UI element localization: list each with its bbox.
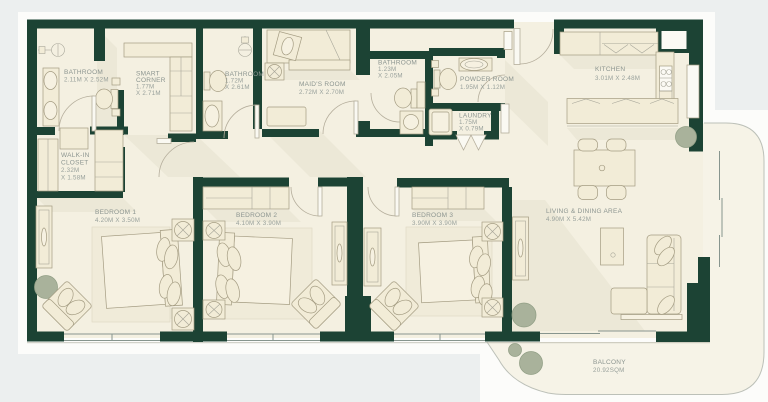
svg-text:2.72M X 2.70M: 2.72M X 2.70M [299,89,344,96]
svg-text:KITCHEN: KITCHEN [595,66,625,73]
svg-text:BEDROOM 3: BEDROOM 3 [412,212,453,219]
svg-text:POWDER ROOM: POWDER ROOM [460,76,514,83]
svg-text:LIVING & DINING AREA: LIVING & DINING AREA [546,208,623,215]
svg-text:BEDROOM 1: BEDROOM 1 [95,209,136,216]
svg-text:X 1.58M: X 1.58M [61,175,86,182]
svg-text:X 2.71M: X 2.71M [136,90,161,97]
svg-text:20.92SQM: 20.92SQM [593,367,625,374]
svg-text:MAID'S ROOM: MAID'S ROOM [299,81,346,88]
svg-text:1.95M X 1.12M: 1.95M X 1.12M [460,84,505,91]
svg-text:X 2.05M: X 2.05M [378,73,403,80]
svg-text:3.01M X 2.48M: 3.01M X 2.48M [595,75,640,82]
svg-text:BEDROOM 2: BEDROOM 2 [236,212,277,219]
svg-text:4.10M X 3.90M: 4.10M X 3.90M [236,220,281,227]
svg-text:BALCONY: BALCONY [593,359,626,366]
svg-text:X 0.79M: X 0.79M [459,126,484,133]
svg-text:4.90M X 5.42M: 4.90M X 5.42M [546,216,591,223]
svg-text:BATHROOM: BATHROOM [64,69,103,76]
svg-text:X 2.61M: X 2.61M [225,84,250,91]
svg-text:CLOSET: CLOSET [61,160,89,167]
svg-text:2.11M X 2.52M: 2.11M X 2.52M [64,77,109,84]
svg-text:4.20M X 3.50M: 4.20M X 3.50M [95,217,140,224]
svg-text:2.32M: 2.32M [61,167,79,174]
svg-text:WALK-IN: WALK-IN [61,152,90,159]
svg-text:3.90M X 3.90M: 3.90M X 3.90M [412,220,457,227]
